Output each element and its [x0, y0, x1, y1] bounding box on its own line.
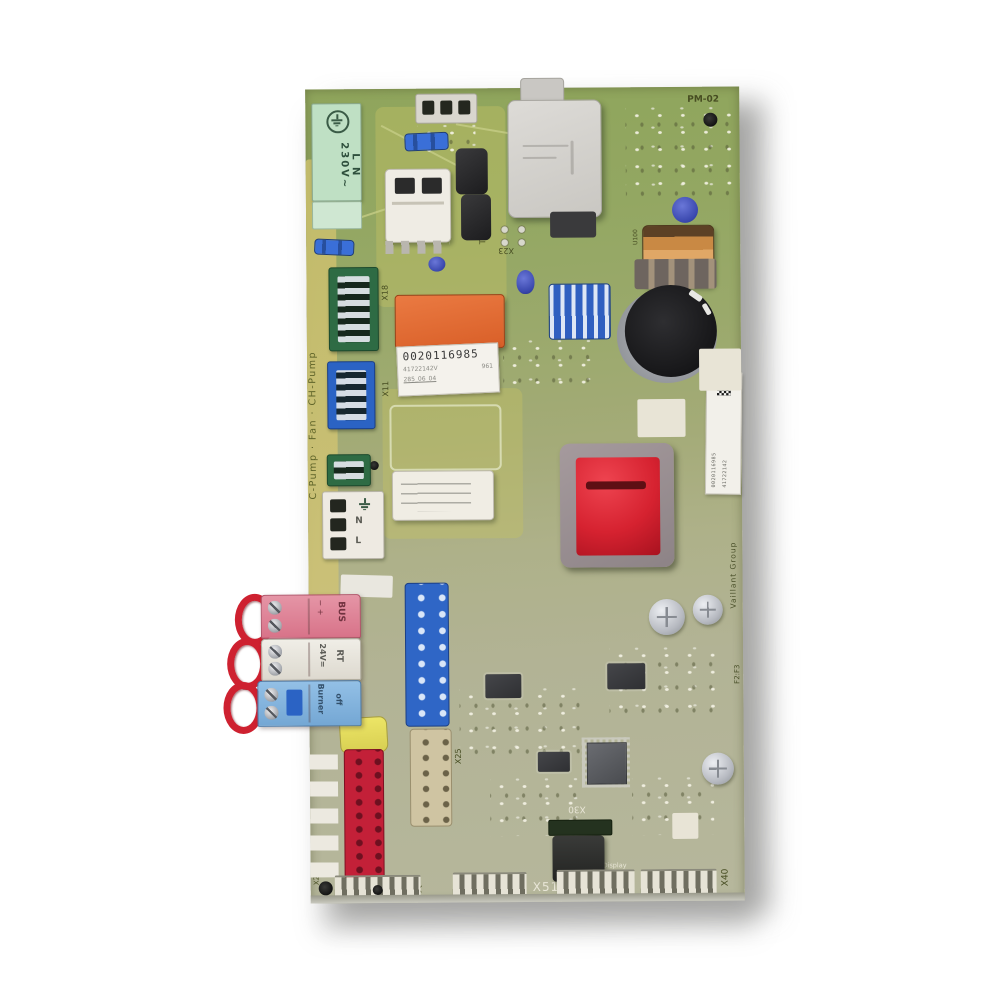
connector-contacts: [337, 276, 369, 342]
silkscreen-display: Display: [603, 861, 627, 869]
blue-ceramic-resistor: [314, 238, 355, 256]
small-green-connector: [327, 454, 371, 486]
bus-label: BUS: [336, 601, 346, 622]
beige-pin-header-x25: [410, 729, 453, 827]
terminal-n-label: N: [355, 516, 375, 526]
side-barcode-label: 0020116985 41722142: [705, 372, 742, 494]
mounting-hole: [373, 885, 383, 895]
terminal-slot: [330, 518, 346, 531]
divider: [308, 685, 310, 723]
capacitor-vent-mark: [688, 289, 703, 302]
silkscreen-left-edge-label: C-Pump · Fan · CH-Pump: [306, 189, 319, 499]
bus-connector: − + BUS: [261, 594, 361, 639]
silkscreen-x40: X40: [721, 869, 731, 887]
terminal-screw: [268, 619, 282, 633]
earth-symbol-ring: [326, 110, 349, 133]
connector-slot: [440, 100, 452, 114]
red-taped-transformer: [576, 457, 661, 556]
terminal-screw: [264, 688, 278, 702]
bus-polarity-label: − +: [316, 599, 325, 615]
side-label-code1: 0020116985: [711, 399, 718, 487]
transformer-slot: [586, 481, 646, 489]
connector-slot: [458, 100, 470, 114]
connector-contacts: [334, 461, 364, 479]
room-thermostat-connector: 24V= RT: [261, 638, 361, 681]
relay-embossing: [523, 157, 557, 159]
white-component-box: [672, 813, 698, 839]
blue-disc-capacitor: [516, 270, 534, 294]
blue-pin-header: [405, 583, 450, 727]
relay-contact: [422, 178, 442, 194]
soic-ic: [607, 663, 645, 689]
divider: [308, 643, 310, 677]
terminal-screw: [268, 601, 282, 615]
connector-x18: [328, 267, 379, 351]
ic-body: [587, 742, 627, 784]
mounting-hole: [319, 881, 333, 895]
smd-cluster: [459, 688, 579, 759]
product-label: 0020116985 41722142V 961 285_06_04: [396, 342, 500, 396]
white-component-box: [637, 399, 685, 437]
silkscreen-u100: U100: [632, 229, 639, 245]
product-serial: 41722142V: [403, 365, 438, 373]
burner-off-connector: Burner off: [257, 680, 361, 727]
mains-terminal-connector: L N 230V~: [311, 103, 362, 201]
blue-bead-capacitor: [428, 257, 445, 272]
silkscreen-vaillant-group: Vaillant Group: [728, 505, 738, 609]
capacitor-vent-mark: [702, 303, 712, 316]
relay-embossing: [523, 145, 569, 147]
connector-slot: [422, 101, 434, 115]
red-pin-header: [344, 749, 385, 879]
relay-embossing: [571, 141, 574, 175]
soic-ic: [538, 752, 570, 772]
relay-pins: [385, 241, 449, 254]
silkscreen-f2f3: F2:F3: [733, 664, 741, 683]
microcontroller-qfp: [582, 737, 630, 787]
relay-footprint-outline: [389, 404, 501, 471]
smd-cluster: [625, 107, 734, 198]
terminal-screw: [268, 662, 282, 676]
transformer-frame: [560, 443, 675, 568]
silkscreen-x11: X11: [381, 381, 390, 397]
soic-ic: [485, 674, 521, 698]
terminal-screw: [264, 706, 278, 720]
black-capacitor: [461, 194, 491, 240]
divider: [308, 599, 310, 635]
white-relay: [385, 169, 452, 243]
burner-label-line2: off: [334, 693, 343, 705]
silkscreen-x30: X30: [568, 804, 586, 814]
pcb-board: PM-02 C-Pump · Fan · CH-Pump 0914 T2 X23…: [305, 86, 745, 903]
connector-keying: [286, 690, 302, 716]
silver-capacitor: [702, 753, 734, 785]
rt-voltage-label: 24V=: [318, 643, 327, 667]
relay-seam: [392, 202, 444, 205]
silkscreen-x25: X25: [454, 748, 463, 764]
product-revision: 285_06_04: [403, 373, 493, 384]
silkscreen-x51: X51: [533, 880, 560, 894]
connector-x11: [327, 361, 375, 429]
earth-icon: [359, 498, 370, 510]
mains-terminal-label: L N 230V~: [312, 134, 360, 196]
pump-terminal-connector: N L: [322, 491, 384, 559]
white-relay-schrack: [392, 470, 494, 521]
photo-canvas: PM-02 C-Pump · Fan · CH-Pump 0914 T2 X23…: [0, 0, 984, 985]
gray-power-relay: [507, 99, 602, 218]
blue-disc-capacitor: [672, 197, 698, 223]
product-number: 0020116985: [402, 347, 492, 364]
side-label-code2: 41722142: [722, 400, 729, 488]
black-component: [550, 211, 596, 237]
white-passive-column: [310, 751, 339, 877]
mains-terminal-body: [312, 201, 362, 229]
via-hole: [370, 461, 379, 470]
burner-label-line1: Burner: [316, 683, 325, 714]
board-edge: [311, 892, 745, 903]
relay-print: [401, 479, 471, 511]
silver-capacitor: [649, 599, 685, 635]
smd-cluster: [503, 340, 593, 389]
rt-label: RT: [334, 649, 344, 662]
terminal-slot: [330, 499, 346, 512]
blue-ceramic-resistor: [404, 132, 449, 152]
connector-x30: [548, 819, 612, 835]
connector-contacts: [336, 370, 366, 420]
earth-icon: [331, 114, 342, 126]
top-edge-connector: [415, 93, 477, 123]
blue-pin-array: [549, 283, 611, 339]
silkscreen-pm02: PM-02: [687, 95, 719, 105]
mounting-hole: [703, 113, 717, 127]
black-capacitor: [456, 148, 488, 194]
relay-contact: [395, 178, 415, 194]
terminal-l-label: L: [355, 536, 375, 546]
white-component-box: [699, 348, 741, 390]
terminal-screw: [268, 645, 282, 659]
product-batch: 961: [481, 363, 493, 370]
silver-capacitor: [693, 595, 723, 625]
orange-relay: [395, 294, 505, 349]
silkscreen-x18: X18: [381, 285, 390, 301]
terminal-slot: [330, 537, 346, 550]
x23-pads: [496, 223, 530, 249]
